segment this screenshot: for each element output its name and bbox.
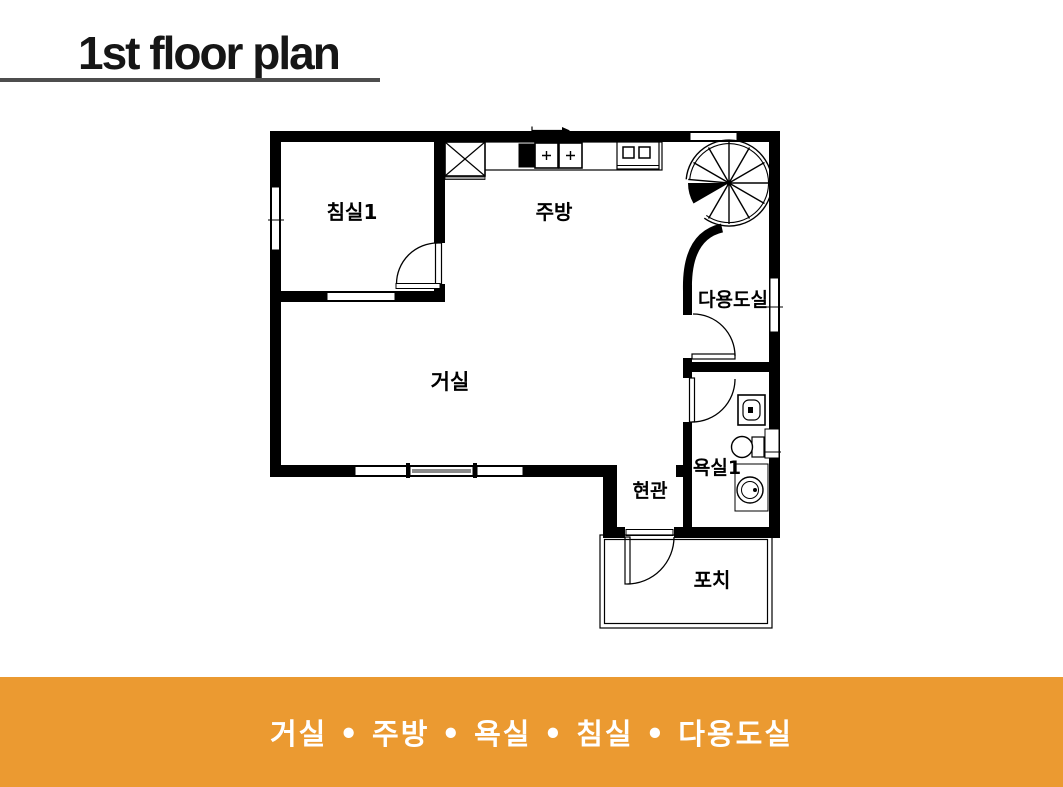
wash-basin-drain [753, 488, 757, 492]
sink-drainer [519, 144, 534, 167]
stove-burner-1 [623, 147, 634, 158]
window-bedroom-left [272, 187, 280, 250]
refrigerator-base [445, 177, 485, 180]
window-bedroom-bottom [327, 293, 395, 301]
refrigerator-icon [445, 142, 485, 180]
room-label-bathroom1: 욕실1 [693, 457, 741, 479]
window-utility-right [770, 278, 779, 332]
wall-bottom-left-of-door [603, 527, 625, 538]
door-utility [692, 314, 735, 359]
room-label-porch: 포치 [694, 568, 731, 592]
door-bedroom1-open-leaf [396, 284, 440, 289]
toilet-bowl [732, 437, 753, 458]
kitchen-sink-icon [519, 143, 582, 168]
toilet-icon [732, 437, 765, 458]
door-bedroom1 [396, 243, 442, 289]
footer-banner: 거실 • 주방 • 욕실 • 침실 • 다용도실 [0, 677, 1063, 787]
room-label-bedroom1: 침실1 [327, 200, 378, 224]
room-label-utility: 다용도실 [698, 289, 768, 311]
window-living-tick-2 [473, 463, 477, 478]
door-bathroom1-arc [692, 379, 735, 422]
wall-entry-step [603, 465, 617, 535]
door-bedroom1-arc [397, 243, 438, 284]
room-label-living: 거실 [431, 370, 470, 394]
wall-bedroom-right-upper [434, 131, 445, 243]
bathroom-fixtures [732, 395, 769, 511]
wall-left [270, 131, 281, 477]
door-entrance-arc [628, 537, 675, 584]
wall-utility-bath-divider [683, 362, 769, 372]
wall-west-bathroom [683, 422, 692, 530]
spiral-staircase-icon [686, 140, 772, 226]
floor-plan-svg: 침실1 주방 다용도실 거실 현관 욕실1 포치 [0, 0, 1063, 787]
stove-burner-2 [639, 147, 650, 158]
room-label-entrance: 현관 [633, 480, 668, 502]
door-bathroom1 [690, 378, 736, 422]
bathroom-sink-icon [738, 395, 765, 425]
stair-newel [726, 180, 731, 185]
door-entrance-leaf [625, 537, 630, 584]
room-label-kitchen: 주방 [536, 200, 573, 224]
window-living-tick-1 [406, 463, 410, 478]
window-living-1 [355, 467, 407, 476]
wall-curved-stair [687, 228, 722, 291]
stove-icon [617, 142, 659, 169]
window-bath-niche [765, 429, 779, 458]
bathroom-sink-drain [748, 407, 753, 413]
door-bedroom1-leaf [436, 243, 442, 284]
toilet-tank [752, 437, 764, 457]
door-entrance-porch [625, 530, 674, 585]
banner-room-list: 거실 • 주방 • 욕실 • 침실 • 다용도실 [270, 711, 793, 753]
door-utility-arc [693, 314, 735, 356]
door-utility-leaf [692, 354, 735, 359]
window-living-3 [477, 467, 523, 476]
door-bathroom1-leaf [690, 378, 695, 422]
